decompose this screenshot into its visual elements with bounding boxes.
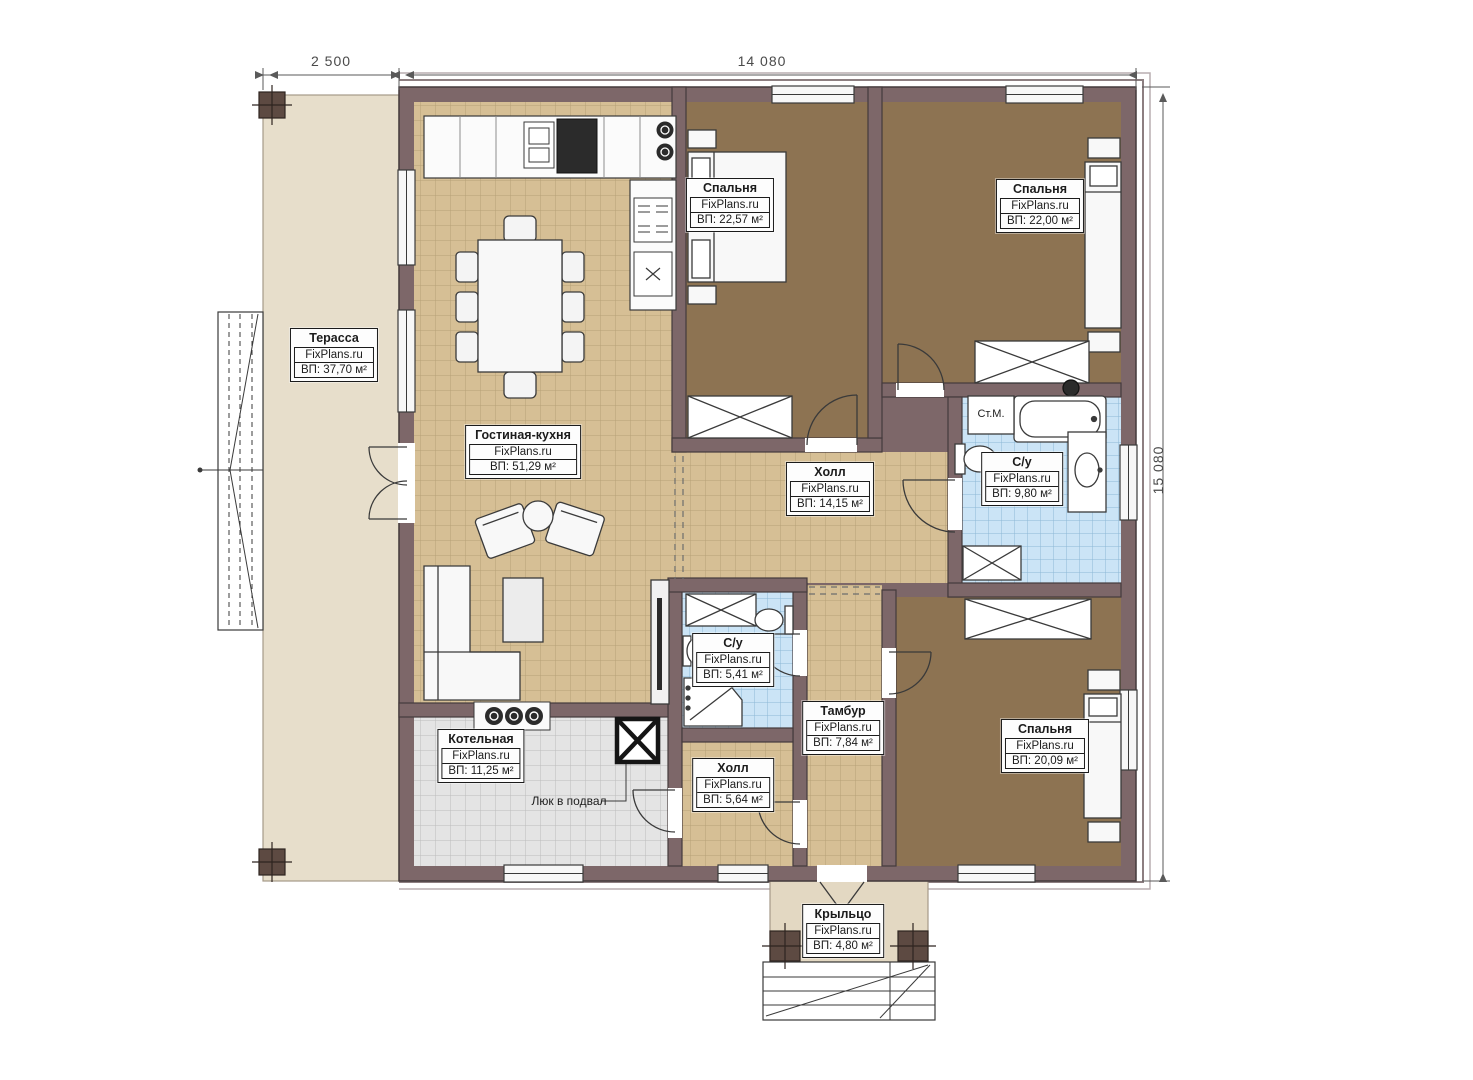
pipe-manifold-icon	[485, 707, 543, 725]
toilet-icon	[955, 444, 996, 474]
wardrobe-icon	[975, 341, 1089, 383]
floor-hall-small	[682, 742, 793, 866]
floor-hall-main	[660, 452, 948, 583]
coffee-table-icon	[503, 578, 543, 642]
vanity-sink-icon	[1068, 432, 1106, 512]
wardrobe-icon	[686, 594, 756, 626]
oven-icon	[634, 198, 672, 242]
sink-icon	[683, 636, 707, 666]
floor-plan-page: 2 500 14 080 15 080 Терасса FixPlans.ru …	[0, 0, 1473, 1080]
cabinet-icon	[634, 252, 672, 296]
chimney-icon	[617, 719, 658, 762]
wardrobe-icon	[963, 546, 1021, 580]
wardrobe-icon	[688, 396, 792, 438]
stove-icon	[557, 119, 597, 173]
dining-table	[478, 240, 562, 372]
wardrobe-icon	[965, 599, 1091, 639]
washing-machine-icon	[968, 396, 1014, 434]
bed-icon	[1085, 162, 1121, 328]
burner-icon	[657, 144, 674, 161]
terrace	[198, 85, 400, 882]
porch-steps-icon	[763, 962, 935, 1020]
side-table-icon	[523, 501, 553, 531]
boiler-icon	[496, 731, 510, 745]
floor-tambour	[807, 585, 882, 866]
burner-icon	[657, 122, 674, 139]
floor-plan-drawing	[0, 0, 1473, 1080]
terrace-steps-icon	[198, 312, 264, 630]
